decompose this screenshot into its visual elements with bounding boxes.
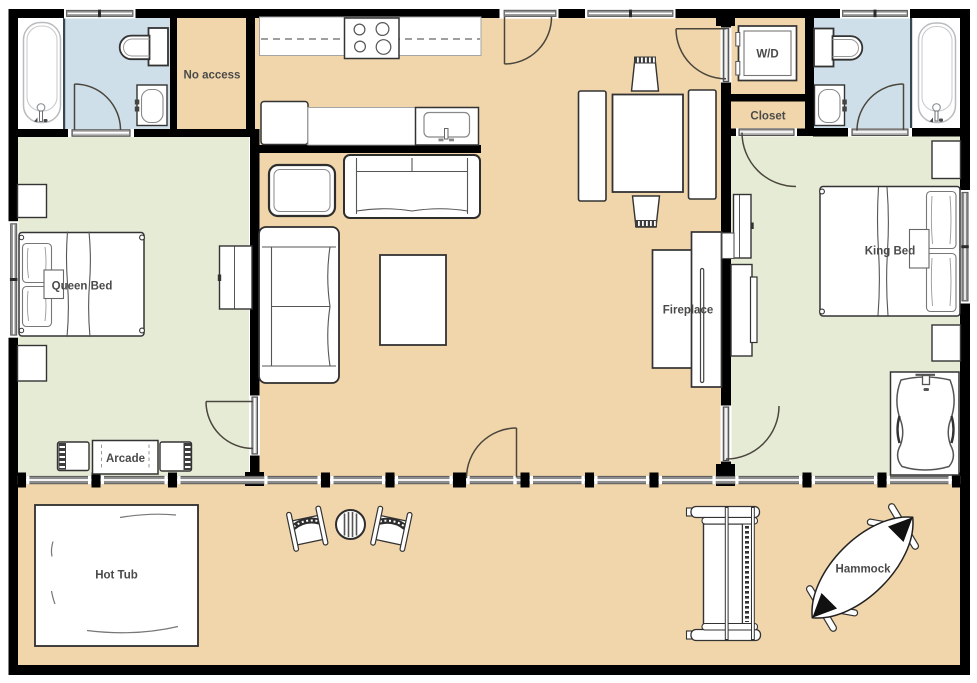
svg-text:Fireplace: Fireplace <box>663 305 714 317</box>
svg-text:No access: No access <box>184 70 241 82</box>
svg-text:Queen Bed: Queen Bed <box>52 281 113 293</box>
svg-text:Hot Tub: Hot Tub <box>95 570 138 582</box>
svg-text:Closet: Closet <box>750 111 785 123</box>
svg-text:Arcade: Arcade <box>106 453 145 465</box>
svg-text:King Bed: King Bed <box>865 246 915 258</box>
svg-text:Hammock: Hammock <box>836 564 892 576</box>
svg-text:W/D: W/D <box>756 49 778 61</box>
